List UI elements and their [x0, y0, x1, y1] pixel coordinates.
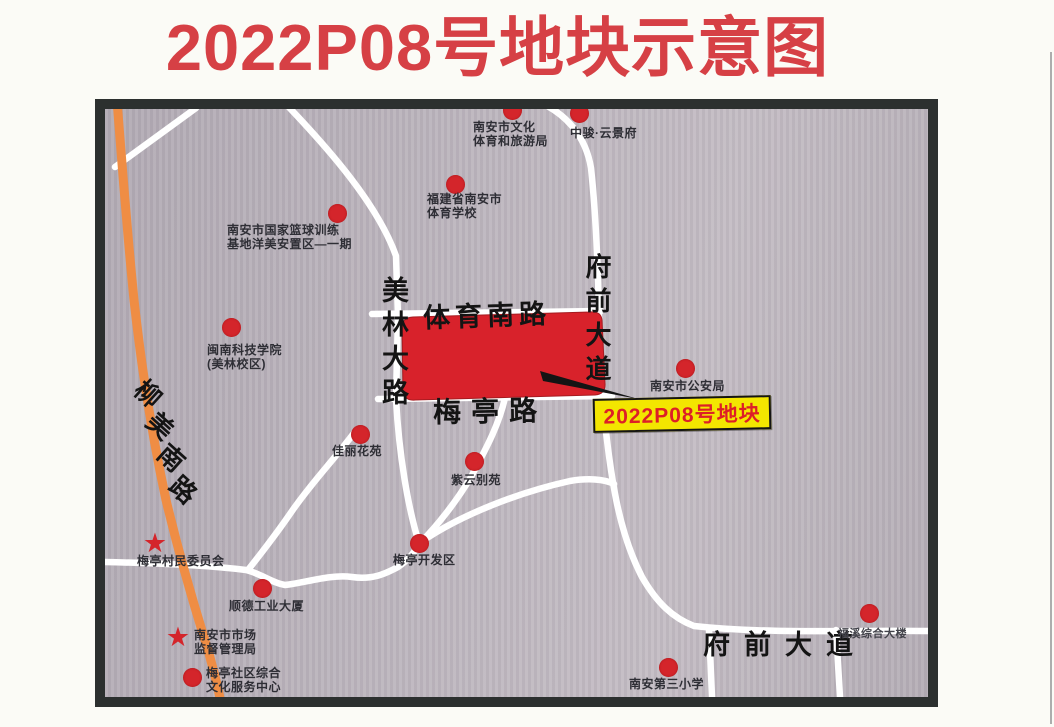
road-top-left-diagonal — [115, 109, 196, 167]
poi-marker-dot-minnan-tech-college — [222, 318, 241, 337]
poi-label-zhongjun-yunjingfu: 中骏·云景府 — [570, 127, 637, 141]
poi-label-line: 南安市文化 — [473, 121, 548, 135]
poi-label-nanan-culture-sports-tourism-bureau: 南安市文化体育和旅游局 — [473, 121, 548, 148]
poi-label-line: 梅亭社区综合 — [206, 667, 281, 681]
poi-label-line: 中骏·云景府 — [570, 127, 637, 141]
poi-marker-dot-shunde-industrial-building — [253, 579, 272, 598]
poi-label-line: 监督管理局 — [194, 643, 257, 657]
poi-label-line: 南安市公安局 — [650, 380, 725, 394]
poi-label-line: 文化服务中心 — [206, 681, 281, 695]
road-label-meiting-road: 梅亭路 — [433, 389, 548, 431]
poi-label-line: (美林校区) — [207, 358, 282, 372]
poi-marker-dot-national-basketball-training-base — [328, 204, 347, 223]
poi-marker-dot-nanan-public-security-bureau — [676, 359, 695, 378]
poi-label-fuxi-comprehensive-building: 福溪综合大楼 — [838, 628, 907, 642]
poi-label-line: 福建省南安市 — [427, 193, 502, 207]
poi-marker-dot-nanan-third-primary-school — [659, 658, 678, 677]
poi-label-line: 南安市市场 — [194, 629, 257, 643]
poi-label-national-basketball-training-base: 南安市国家篮球训练基地洋美安置区—一期 — [227, 224, 352, 251]
poi-marker-dot-jiali-garden — [351, 425, 370, 444]
road-label-meilin-avenue: 美林大路 — [374, 276, 413, 412]
poi-label-line: 南安市国家篮球训练 — [227, 224, 352, 238]
map-frame: 2022P08号地块 柳美南路美林大路体育南路梅亭路府前大道府前大道南安市文化体… — [95, 99, 938, 707]
poi-label-line: 福溪综合大楼 — [838, 628, 907, 642]
poi-label-shunde-industrial-building: 顺德工业大厦 — [229, 600, 304, 614]
poi-label-ziyun-villa: 紫云别苑 — [451, 474, 501, 488]
poi-label-line: 闽南科技学院 — [207, 344, 282, 358]
poi-label-jiali-garden: 佳丽花苑 — [332, 445, 382, 459]
poi-label-nanan-market-supervision-bureau: 南安市市场监督管理局 — [194, 629, 257, 656]
poi-label-meiting-village-committee: 梅亭村民委员会 — [137, 555, 225, 569]
poi-marker-dot-meiting-community-culture-center — [183, 668, 202, 687]
road-label-tiyu-south-road: 体育南路 — [422, 292, 551, 335]
poi-label-line: 佳丽花苑 — [332, 445, 382, 459]
page-title: 2022P08号地块示意图 — [40, 4, 955, 94]
poi-label-line: 体育学校 — [427, 207, 502, 221]
map-canvas: 2022P08号地块 柳美南路美林大路体育南路梅亭路府前大道府前大道南安市文化体… — [105, 109, 928, 697]
poi-label-line: 顺德工业大厦 — [229, 600, 304, 614]
poi-label-line: 紫云别苑 — [451, 474, 501, 488]
poi-marker-dot-fuxi-comprehensive-building — [860, 604, 879, 623]
road-liumei-south — [117, 109, 222, 697]
poi-marker-star-nanan-market-supervision-bureau: ★ — [163, 622, 193, 652]
poi-marker-dot-fujian-nanan-sports-school — [446, 175, 465, 194]
poi-marker-dot-zhongjun-yunjingfu — [570, 109, 589, 123]
scan-artifact-line — [1050, 52, 1052, 724]
poi-label-minnan-tech-college: 闽南科技学院(美林校区) — [207, 344, 282, 371]
poi-label-line: 体育和旅游局 — [473, 135, 548, 149]
poi-label-nanan-third-primary-school: 南安第三小学 — [629, 678, 704, 692]
poi-label-nanan-public-security-bureau: 南安市公安局 — [650, 380, 725, 394]
poi-label-line: 南安第三小学 — [629, 678, 704, 692]
poi-label-meiting-community-culture-center: 梅亭社区综合文化服务中心 — [206, 667, 281, 694]
poi-marker-dot-ziyun-villa — [465, 452, 484, 471]
poi-label-line: 梅亭开发区 — [393, 554, 456, 568]
plot-label-box: 2022P08号地块 — [593, 395, 772, 433]
poi-label-meiting-development-zone: 梅亭开发区 — [393, 554, 456, 568]
poi-label-line: 梅亭村民委员会 — [137, 555, 225, 569]
road-label-fuqian-avenue-vertical: 府前大道 — [579, 253, 616, 389]
plot-label-text: 2022P08号地块 — [603, 397, 761, 430]
poi-label-fujian-nanan-sports-school: 福建省南安市体育学校 — [427, 193, 502, 220]
poi-marker-dot-meiting-development-zone — [410, 534, 429, 553]
poi-label-line: 基地洋美安置区—一期 — [227, 238, 352, 252]
